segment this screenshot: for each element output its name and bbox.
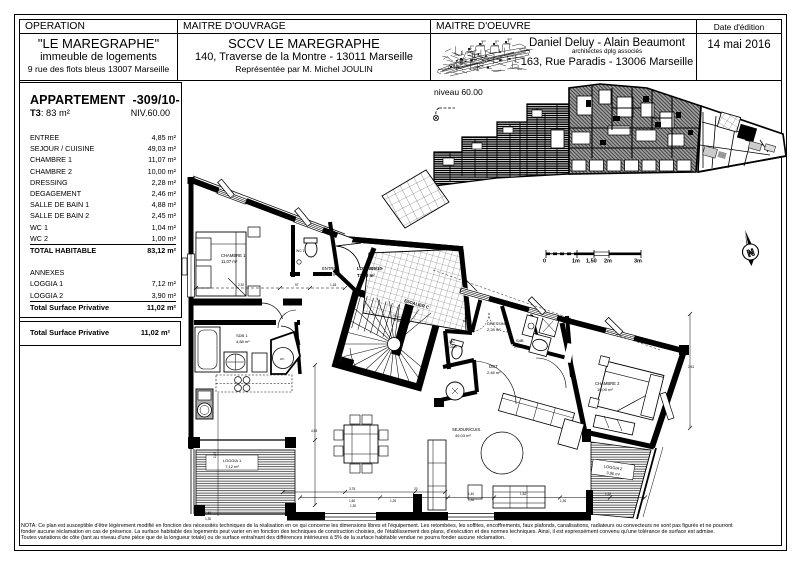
svg-text:SdB: SdB bbox=[516, 338, 524, 343]
svg-text:0: 0 bbox=[543, 259, 546, 265]
svg-text:62: 62 bbox=[463, 319, 467, 323]
svg-text:4,85 m²: 4,85 m² bbox=[322, 272, 337, 277]
svg-text:7,12 m²: 7,12 m² bbox=[225, 464, 239, 469]
svg-text:49,03 m²: 49,03 m² bbox=[455, 433, 471, 438]
svg-text:2,61: 2,61 bbox=[688, 365, 694, 369]
svg-text:LOT -309/10-: LOT -309/10- bbox=[357, 266, 384, 271]
svg-text:20: 20 bbox=[414, 487, 418, 491]
svg-text:1,30: 1,30 bbox=[560, 499, 566, 503]
svg-text:3m: 3m bbox=[634, 259, 642, 265]
svg-text:10,00 m²: 10,00 m² bbox=[597, 387, 613, 392]
svg-text:1,25: 1,25 bbox=[390, 499, 396, 503]
svg-text:WC 1: WC 1 bbox=[296, 249, 305, 253]
svg-text:1,30: 1,30 bbox=[468, 498, 474, 502]
svg-text:niveau 60.00: niveau 60.00 bbox=[434, 87, 483, 97]
svg-text:11,07 m²: 11,07 m² bbox=[221, 259, 238, 264]
svg-text:2,92: 2,92 bbox=[238, 283, 244, 287]
svg-text:T3 83 m²: T3 83 m² bbox=[357, 273, 375, 278]
svg-text:1,52: 1,52 bbox=[605, 492, 611, 496]
svg-text:1,60: 1,60 bbox=[349, 499, 355, 503]
svg-text:1,50: 1,50 bbox=[586, 259, 597, 265]
svg-text:SEJOUR/CUIS.: SEJOUR/CUIS. bbox=[452, 427, 481, 432]
svg-text:1m: 1m bbox=[572, 259, 580, 265]
svg-text:CHAMBRE 1: CHAMBRE 1 bbox=[221, 253, 246, 258]
svg-text:WC: WC bbox=[280, 357, 284, 361]
svg-text:2,03: 2,03 bbox=[213, 452, 217, 458]
svg-text:4,88 m²: 4,88 m² bbox=[236, 339, 250, 344]
svg-text:CHAMBRE 2: CHAMBRE 2 bbox=[595, 381, 620, 386]
svg-text:ENTREE: ENTREE bbox=[322, 266, 339, 271]
svg-text:1,40: 1,40 bbox=[468, 492, 474, 496]
svg-text:2,28 m²: 2,28 m² bbox=[487, 327, 501, 332]
svg-text:97: 97 bbox=[295, 283, 299, 287]
svg-text:2,46 m²: 2,46 m² bbox=[487, 370, 501, 375]
svg-text:1,30: 1,30 bbox=[205, 517, 211, 521]
svg-text:1,04m²: 1,04m² bbox=[447, 345, 457, 349]
svg-text:SDB 1: SDB 1 bbox=[236, 333, 248, 338]
svg-text:3,75: 3,75 bbox=[349, 487, 355, 491]
svg-text:2m: 2m bbox=[604, 259, 612, 265]
svg-text:DRESSING: DRESSING bbox=[487, 321, 508, 326]
svg-text:2,45 m²: 2,45 m² bbox=[514, 345, 527, 349]
svg-text:1,30: 1,30 bbox=[350, 504, 356, 508]
svg-text:LOGGIA 1: LOGGIA 1 bbox=[223, 458, 242, 463]
svg-text:1,52: 1,52 bbox=[520, 492, 526, 496]
svg-text:WC: WC bbox=[449, 340, 455, 344]
svg-text:4,53: 4,53 bbox=[311, 429, 317, 433]
svg-text:1,40: 1,40 bbox=[205, 511, 211, 515]
svg-text:1,18: 1,18 bbox=[330, 283, 336, 287]
svg-text:40: 40 bbox=[464, 302, 468, 306]
